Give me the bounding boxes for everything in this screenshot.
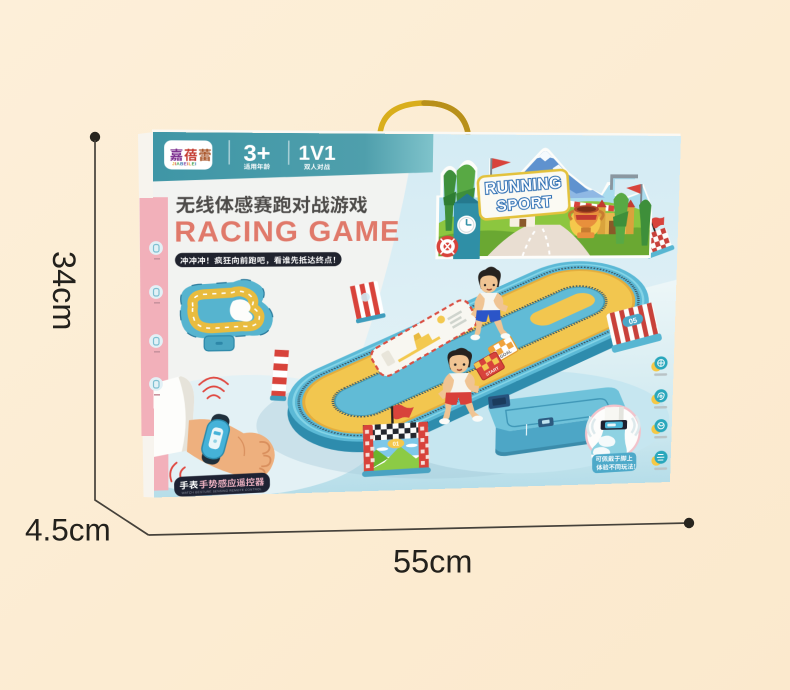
svg-text:55cm: 55cm — [393, 544, 472, 580]
svg-text:4.5cm: 4.5cm — [25, 512, 111, 548]
svg-text:34cm: 34cm — [46, 251, 82, 330]
